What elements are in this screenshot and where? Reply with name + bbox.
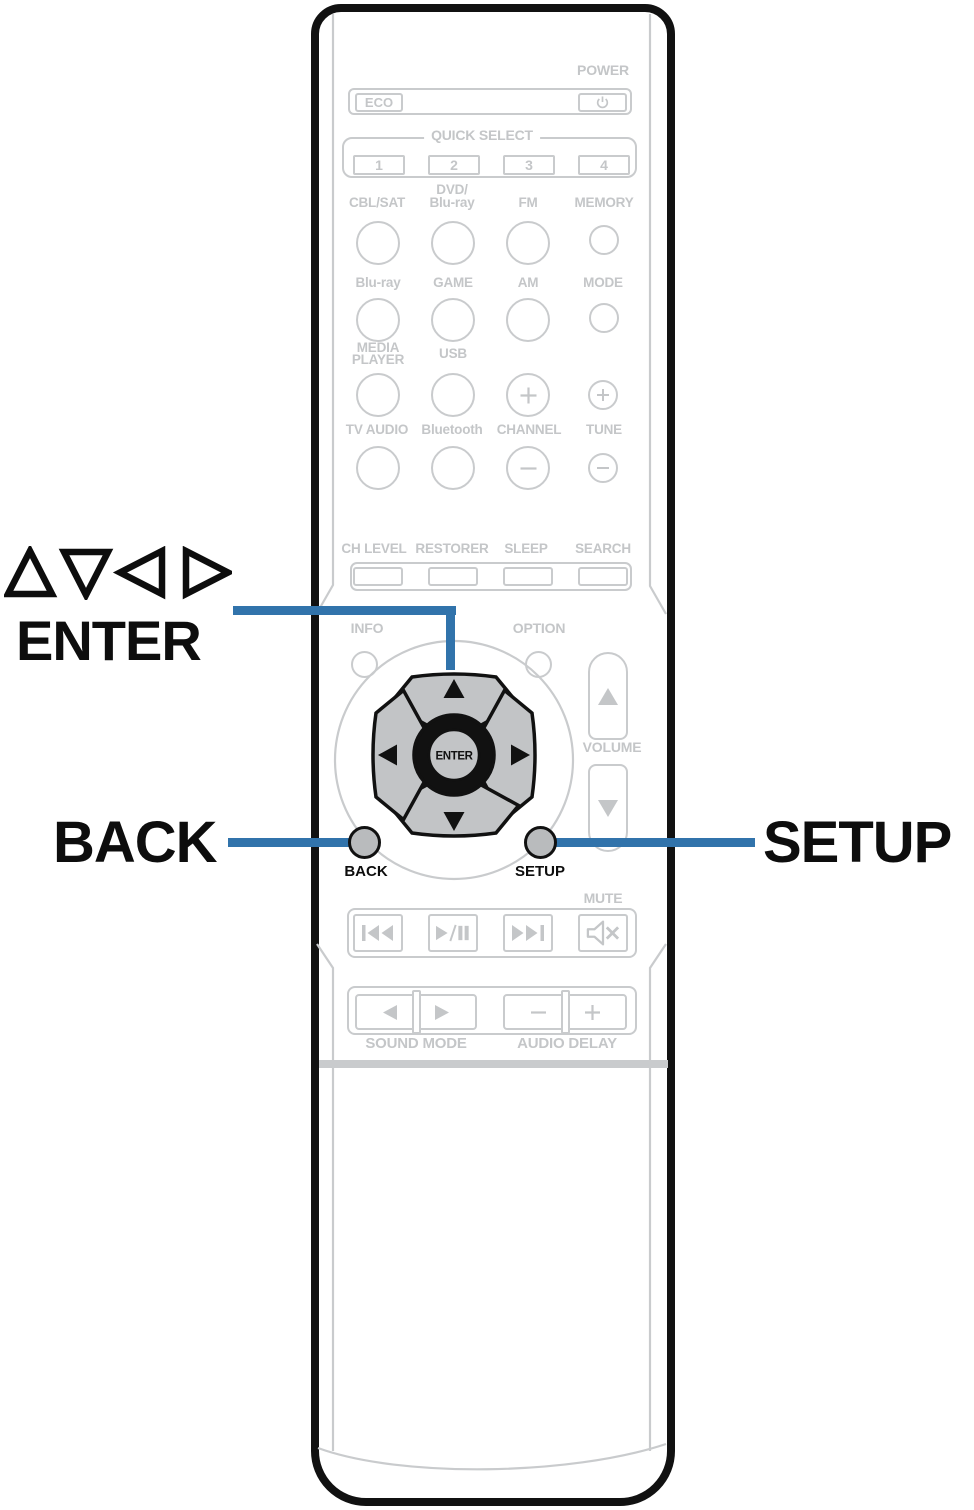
sound-mode-left-icon [382, 1005, 397, 1020]
back-button[interactable] [348, 826, 381, 859]
tv-audio-button[interactable] [356, 446, 400, 490]
dvd-label-line2: Blu-ray [429, 196, 474, 209]
sound-mode-right-icon [435, 1005, 450, 1020]
quick-select-4-label: 4 [600, 157, 608, 173]
mute-button[interactable] [578, 914, 628, 952]
channel-label: CHANNEL [497, 423, 562, 436]
minus-icon [530, 1004, 547, 1021]
restorer-button[interactable] [428, 567, 478, 586]
plus-icon [596, 388, 610, 402]
play-pause-icon [436, 924, 470, 942]
quick-select-2-button[interactable]: 2 [428, 155, 480, 175]
audio-delay-label: AUDIO DELAY [517, 1037, 617, 1050]
volume-label: VOLUME [583, 741, 642, 754]
blu-ray-label: Blu-ray [355, 276, 400, 289]
setup-callout-text: SETUP [763, 814, 951, 872]
enter-callout-text: ENTER [16, 613, 201, 669]
callout-down-triangle-icon [64, 552, 108, 595]
search-button[interactable] [578, 567, 628, 586]
bluetooth-label: Bluetooth [421, 423, 482, 436]
remote-diagram: POWER ECO QUICK SELECT 1 2 3 4 CBL/SAT D… [0, 0, 974, 1510]
enter-callout-line-h [233, 606, 456, 615]
eco-button-label: ECO [365, 95, 393, 110]
dvd-blu-ray-button[interactable] [431, 221, 475, 265]
quick-select-1-label: 1 [375, 157, 383, 173]
game-button[interactable] [431, 298, 475, 342]
skip-back-icon [362, 925, 394, 941]
power-button[interactable] [578, 93, 627, 112]
cbl-sat-label: CBL/SAT [349, 196, 405, 209]
quick-select-3-button[interactable]: 3 [503, 155, 555, 175]
ch-level-label: CH LEVEL [341, 542, 406, 555]
channel-down-button[interactable] [506, 446, 550, 490]
power-label: POWER [577, 64, 629, 77]
blu-ray-button[interactable] [356, 298, 400, 342]
cursor-pad: ENTER [373, 674, 535, 836]
back-callout-line [228, 838, 365, 847]
audio-delay-rocker-divider [561, 990, 570, 1034]
skip-forward-button[interactable] [503, 914, 553, 952]
eco-button[interactable]: ECO [355, 93, 403, 112]
memory-label: MEMORY [574, 196, 633, 209]
search-label: SEARCH [575, 542, 631, 555]
tune-up-button[interactable] [588, 380, 618, 410]
media-player-button[interactable] [356, 373, 400, 417]
volume-up-icon [598, 688, 618, 705]
callout-left-triangle-icon [120, 551, 162, 594]
enter-button[interactable]: ENTER [429, 730, 479, 780]
setup-callout-line [540, 838, 755, 847]
callout-up-triangle-icon [8, 551, 52, 594]
sound-mode-rocker-divider [412, 990, 421, 1034]
setup-button-label: SETUP [515, 863, 565, 880]
quick-select-4-button[interactable]: 4 [578, 155, 630, 175]
tv-audio-label: TV AUDIO [346, 423, 408, 436]
quick-select-3-label: 3 [525, 157, 533, 173]
quick-select-label: QUICK SELECT [424, 129, 540, 142]
sleep-label: SLEEP [504, 542, 547, 555]
bluetooth-button[interactable] [431, 446, 475, 490]
channel-up-button[interactable] [506, 373, 550, 417]
back-callout-text: BACK [53, 814, 217, 872]
cursor-callout-icons [4, 546, 232, 600]
power-icon [596, 96, 609, 109]
quick-select-2-label: 2 [450, 157, 458, 173]
usb-button[interactable] [431, 373, 475, 417]
am-button[interactable] [506, 298, 550, 342]
plus-icon [584, 1004, 601, 1021]
restorer-label: RESTORER [415, 542, 488, 555]
quick-select-1-button[interactable]: 1 [353, 155, 405, 175]
back-button-label: BACK [344, 863, 387, 880]
game-label: GAME [433, 276, 473, 289]
mute-icon [586, 920, 620, 946]
setup-button[interactable] [524, 826, 557, 859]
enter-callout-line-v [446, 606, 455, 670]
play-pause-button[interactable] [428, 914, 478, 952]
minus-icon [519, 459, 538, 478]
minus-icon [596, 461, 610, 475]
mute-label: MUTE [584, 892, 623, 905]
tune-down-button[interactable] [588, 453, 618, 483]
usb-label: USB [439, 347, 467, 360]
volume-up-button[interactable] [588, 652, 628, 740]
mode-button[interactable] [589, 303, 619, 333]
fm-label: FM [518, 196, 537, 209]
fm-button[interactable] [506, 221, 550, 265]
media-player-label-line2: PLAYER [352, 353, 404, 366]
cbl-sat-button[interactable] [356, 221, 400, 265]
plus-icon [519, 386, 538, 405]
memory-button[interactable] [589, 225, 619, 255]
skip-back-button[interactable] [353, 914, 403, 952]
mode-label: MODE [583, 276, 623, 289]
callout-right-triangle-icon [186, 551, 228, 594]
sound-mode-label: SOUND MODE [365, 1037, 466, 1050]
tune-label: TUNE [586, 423, 622, 436]
skip-forward-icon [512, 925, 544, 941]
battery-cover-seam [319, 1060, 668, 1068]
enter-button-label: ENTER [436, 751, 474, 763]
volume-down-icon [598, 800, 618, 817]
am-label: AM [518, 276, 539, 289]
ch-level-button[interactable] [353, 567, 403, 586]
sleep-button[interactable] [503, 567, 553, 586]
